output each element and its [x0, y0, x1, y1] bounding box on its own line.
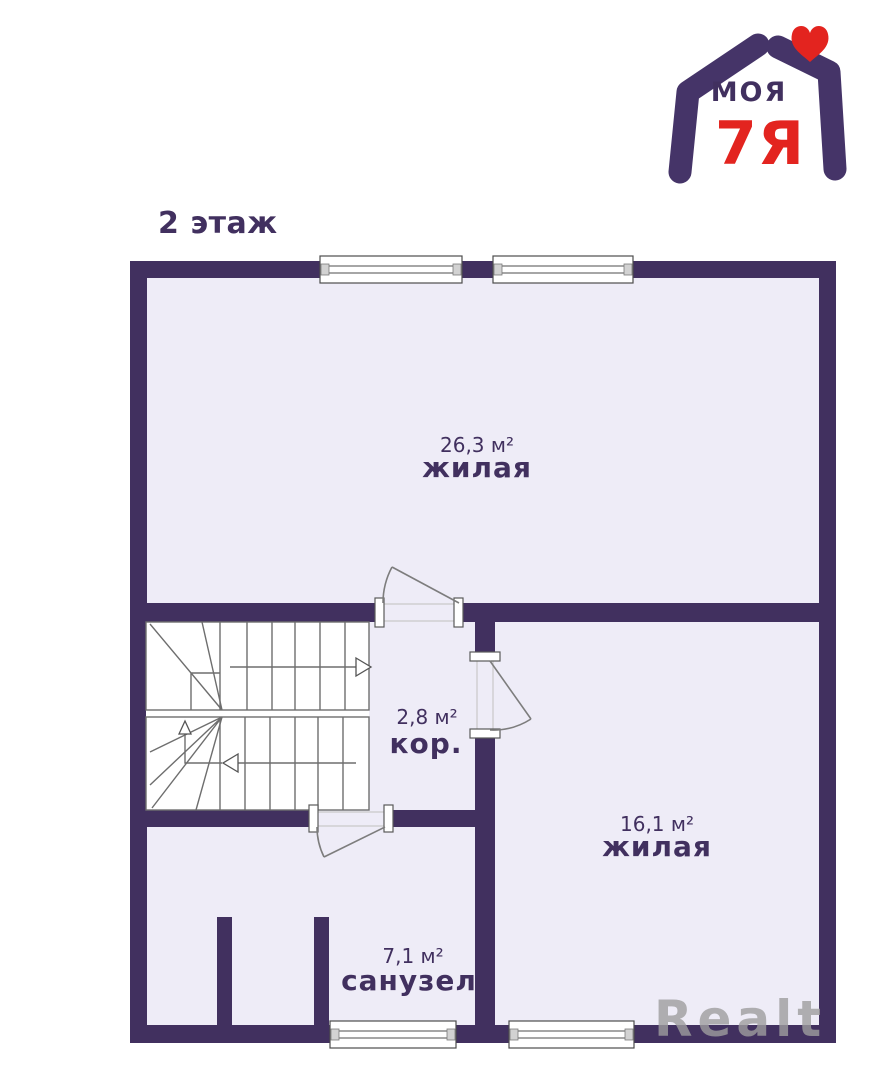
window-top-2: [493, 256, 633, 283]
room-corridor-name: кор.: [390, 727, 463, 760]
window-bottom-1: [330, 1021, 456, 1048]
floor-plan: 26,3 м² жилая 2,8 м² кор. 16,1 м² жилая …: [0, 0, 873, 1080]
window-top-1: [320, 256, 462, 283]
staircase: [146, 622, 371, 810]
room-living-2-name: жилая: [602, 830, 712, 863]
floor-plan-page: МОЯ 7Я 2 этаж: [0, 0, 873, 1080]
room-corridor-area: 2,8 м²: [396, 705, 457, 729]
room-bathroom-name: санузел: [341, 964, 477, 997]
room-living-1-name: жилая: [422, 451, 532, 484]
realt-watermark: Realt: [654, 990, 826, 1048]
room-label-corridor: 2,8 м² кор.: [390, 705, 463, 760]
window-bottom-2: [509, 1021, 634, 1048]
